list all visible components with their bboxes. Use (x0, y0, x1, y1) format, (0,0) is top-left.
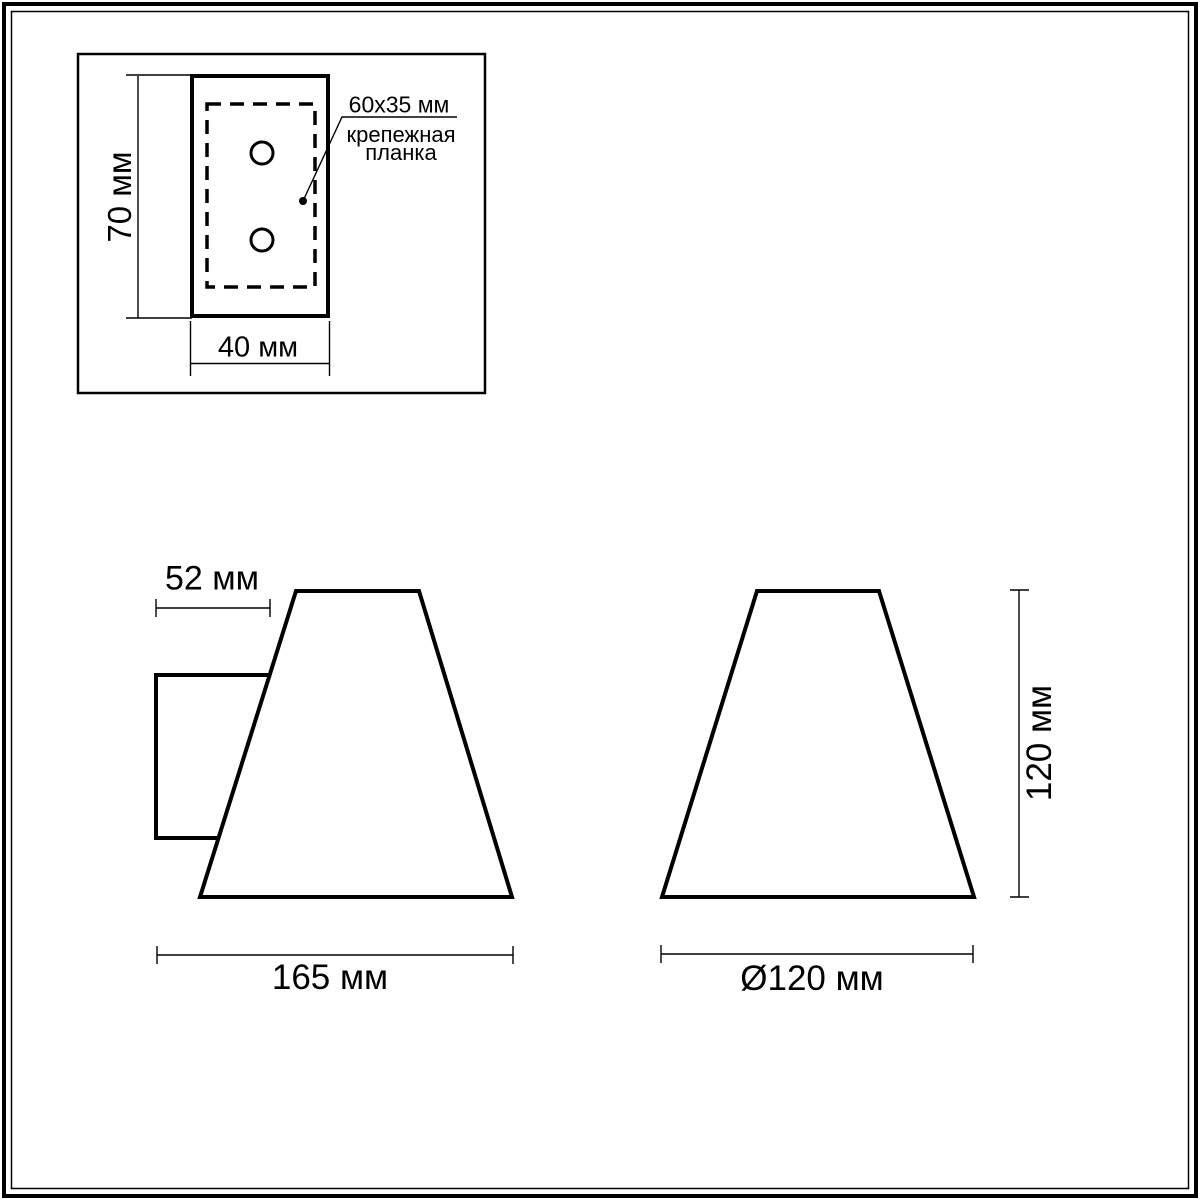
dim-120mm-label: 120 мм (1020, 685, 1060, 801)
dim-52mm-lines (156, 599, 270, 617)
dim-40mm-label: 40 мм (218, 332, 298, 365)
screw-hole-top (251, 142, 273, 164)
dim-165mm-label: 165 мм (272, 958, 388, 998)
mounting-plate-outline (192, 76, 328, 316)
plate-size-label: 60x35 мм (349, 92, 450, 119)
dim-70mm-label: 70 мм (101, 151, 139, 242)
dim-52mm-label: 52 мм (165, 560, 259, 599)
page-frame-inner (12, 12, 1189, 1189)
plate-name-label: крепежная планка (346, 126, 455, 162)
mounting-plate-dashed-outline (207, 104, 315, 287)
page-frame-outer (4, 4, 1196, 1196)
line-art-layer (0, 0, 1200, 1200)
dim-diameter-label: Ø120 мм (740, 959, 883, 999)
screw-hole-bottom (251, 229, 273, 251)
technical-drawing-canvas: 60x35 мм крепежная планка 70 мм 40 мм 52… (0, 0, 1200, 1200)
front-view-shade-body (662, 591, 974, 897)
side-view-shade-body (200, 591, 512, 897)
